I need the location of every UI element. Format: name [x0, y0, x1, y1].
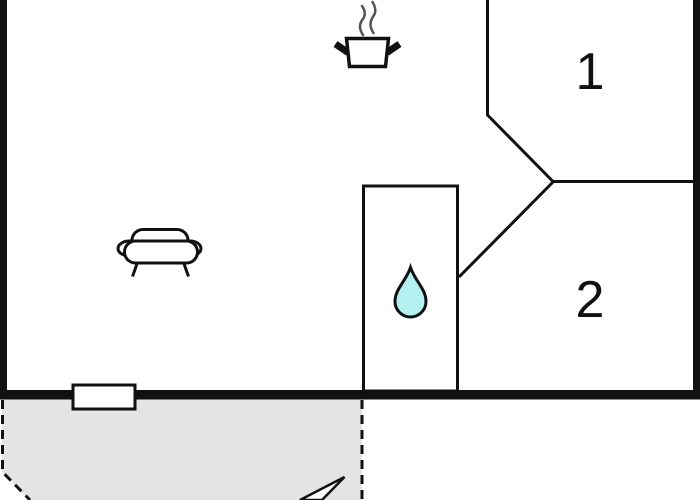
floor-plan-canvas: 1 2 — [0, 0, 700, 500]
wall-right — [693, 0, 700, 399]
room-1-label: 1 — [576, 43, 605, 101]
window-icon — [73, 385, 135, 409]
interior-walls — [364, 0, 695, 391]
wall-left — [0, 0, 7, 399]
steam-wave-left — [360, 6, 365, 35]
water-drop-icon — [395, 268, 426, 318]
terrace-area — [2, 399, 362, 500]
room2-diagonal-wall — [459, 182, 553, 277]
pot-body — [347, 39, 389, 67]
steam-wave-right — [371, 2, 376, 33]
cooking-pot-icon — [336, 2, 400, 67]
floor-plan: 1 2 — [0, 0, 700, 500]
sofa-icon — [118, 230, 201, 277]
sofa-seat — [125, 241, 198, 263]
room-2-label: 2 — [576, 271, 605, 329]
room1-diagonal-wall — [488, 115, 554, 182]
